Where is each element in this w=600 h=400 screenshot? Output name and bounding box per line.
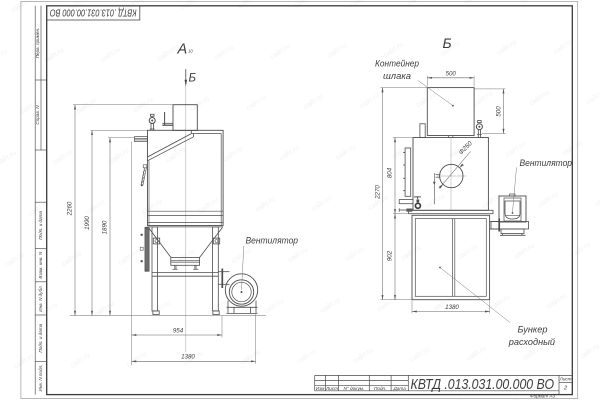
svg-text:Дата: Дата — [393, 386, 407, 391]
svg-text:Подп. и дата: Подп. и дата — [38, 323, 43, 352]
svg-text:Инв. N подл.: Инв. N подл. — [38, 365, 43, 392]
svg-text:Б: Б — [443, 35, 452, 51]
svg-text:расходный: расходный — [508, 337, 555, 347]
svg-text:1380: 1380 — [445, 304, 459, 311]
svg-text:Формат А3: Формат А3 — [530, 393, 556, 398]
svg-text:2260: 2260 — [67, 201, 74, 216]
svg-text:1890: 1890 — [102, 220, 109, 234]
svg-text:500: 500 — [496, 106, 503, 117]
svg-text:804: 804 — [387, 167, 394, 178]
svg-text:500: 500 — [446, 70, 457, 77]
svg-text:Инв. N дубл.: Инв. N дубл. — [38, 285, 43, 312]
svg-text:N° докум.: N° докум. — [343, 386, 364, 391]
svg-text:1990: 1990 — [84, 216, 91, 230]
svg-text:шлака: шлака — [383, 71, 411, 81]
svg-text:Лист: Лист — [559, 377, 572, 382]
svg-text:902: 902 — [387, 250, 394, 261]
svg-text:Вентилятор: Вентилятор — [520, 158, 573, 168]
svg-text:Изм: Изм — [316, 386, 325, 391]
svg-text:Контейнер: Контейнер — [375, 59, 419, 69]
svg-text:Бункер: Бункер — [518, 325, 548, 335]
svg-text:Подп.: Подп. — [374, 386, 386, 391]
svg-text:10: 10 — [188, 49, 193, 54]
svg-text:Перв. примен.: Перв. примен. — [35, 28, 40, 59]
svg-text:КВТД .013.031.00.000 ВО: КВТД .013.031.00.000 ВО — [411, 377, 555, 393]
svg-text:Вентилятор: Вентилятор — [246, 236, 299, 246]
svg-text:954: 954 — [173, 327, 184, 334]
svg-text:Лист: Лист — [325, 386, 338, 391]
svg-text:КВТД .013.031.00.000 ВО: КВТД .013.031.00.000 ВО — [50, 7, 137, 18]
svg-text:Подп. и дата: Подп. и дата — [38, 211, 43, 240]
svg-text:А: А — [177, 41, 188, 57]
svg-text:2270: 2270 — [375, 185, 382, 200]
svg-text:1380: 1380 — [181, 353, 195, 360]
svg-text:Справ. N: Справ. N — [35, 105, 40, 125]
svg-text:Б: Б — [189, 73, 197, 85]
svg-text:Взам. инв. N: Взам. инв. N — [38, 251, 43, 278]
